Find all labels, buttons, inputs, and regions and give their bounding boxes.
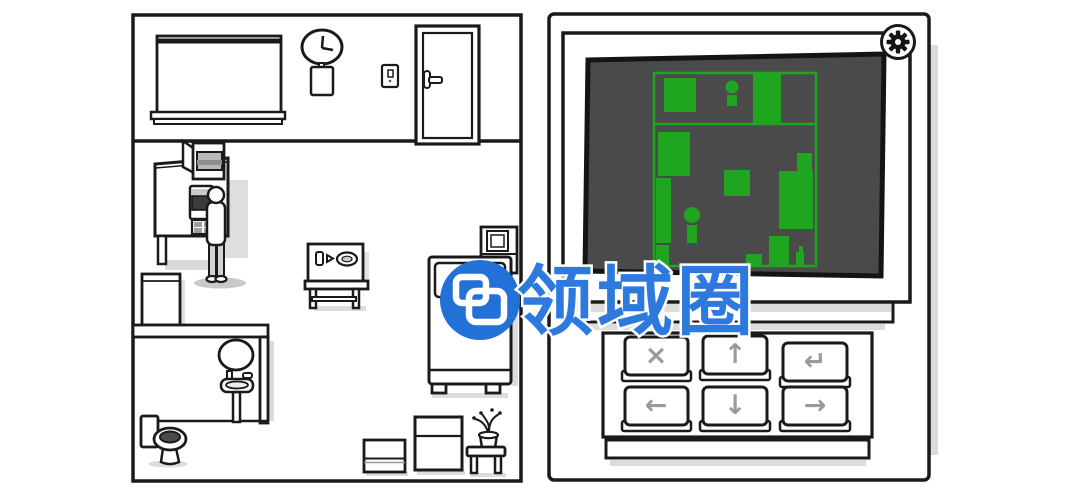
storage-box[interactable]: [364, 440, 408, 476]
mirror[interactable]: [219, 340, 253, 370]
fridge-box[interactable]: [142, 274, 185, 325]
key-enter[interactable]: ↵: [780, 343, 850, 387]
gear-icon: [887, 31, 910, 54]
wall-clock[interactable]: [302, 30, 342, 64]
arrow-right-icon: →: [804, 390, 827, 421]
arrow-down-icon: ↓: [724, 390, 747, 421]
watermark: 领域圈: [440, 257, 757, 346]
device-panel: × ↑ ↵ ← ↓: [549, 14, 938, 480]
key-right[interactable]: →: [780, 387, 850, 431]
minute-hand: [322, 36, 323, 48]
window-blind[interactable]: [151, 36, 285, 124]
radio-table[interactable]: [305, 244, 369, 311]
light-switch[interactable]: [382, 65, 398, 87]
arrow-left-icon: ←: [645, 390, 668, 421]
key-left[interactable]: ←: [622, 387, 691, 431]
settings-button[interactable]: [882, 26, 915, 59]
game-screen: × ↑ ↵ ← ↓: [0, 0, 1080, 498]
key-down[interactable]: ↓: [700, 387, 770, 431]
dresser[interactable]: [415, 417, 465, 475]
room-panel: [133, 15, 521, 481]
watermark-text: 领域圈: [517, 257, 757, 346]
enter-icon: ↵: [804, 346, 827, 377]
notepad[interactable]: [311, 63, 333, 95]
keypad: × ↑ ↵ ← ↓: [603, 333, 872, 466]
door[interactable]: [416, 26, 479, 144]
